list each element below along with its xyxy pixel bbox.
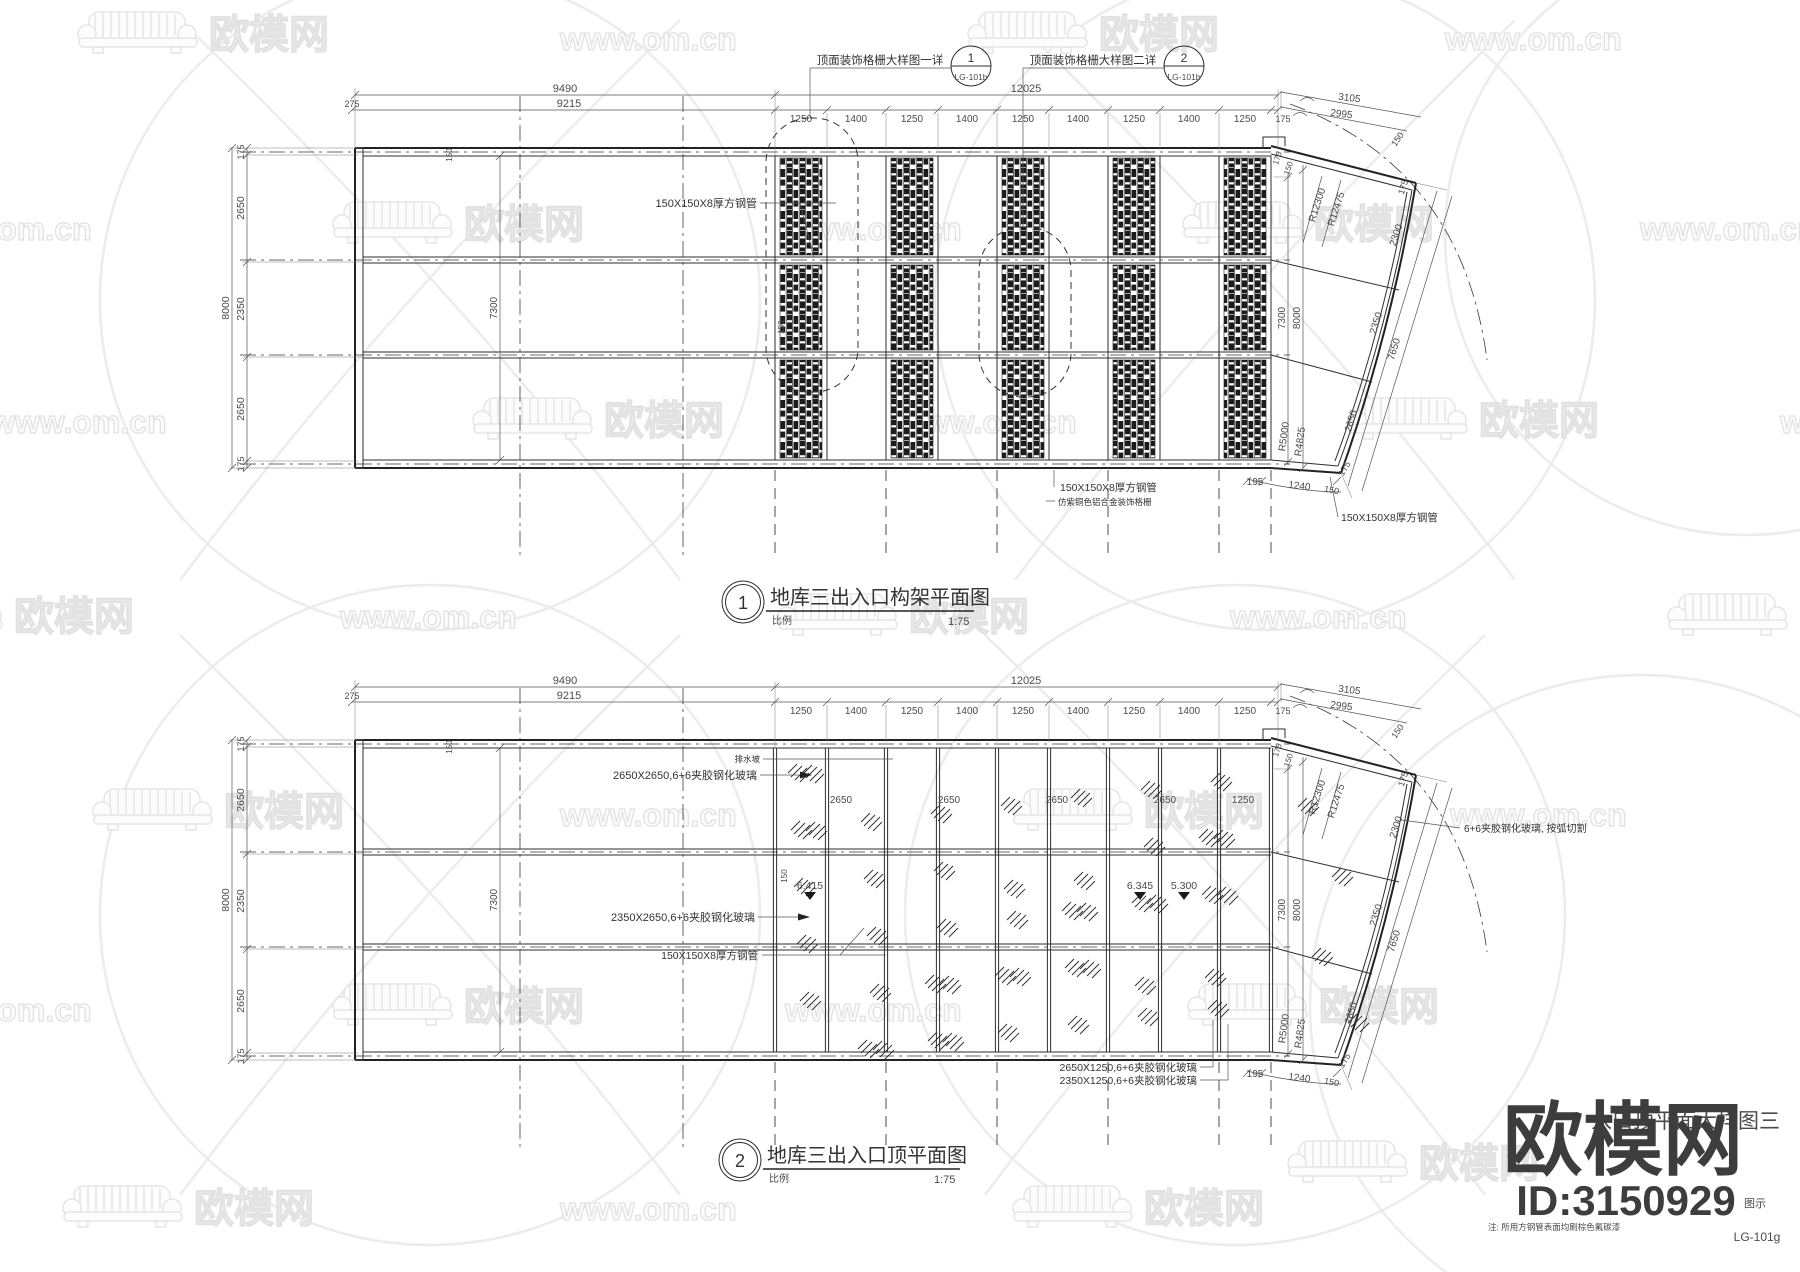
callout-text: 顶面装饰格栅大样图一详 (817, 53, 944, 67)
plan1-frame-plan: 顶面装饰格栅大样图一详 1 LG-101b 顶面装饰格栅大样图二详 2 LG-1… (656, 46, 1438, 628)
panel-dim: 2650 (830, 795, 853, 806)
label-steel-tube-fan: 150X150X8厚方钢管 (1330, 477, 1438, 524)
label-glass-d: 2350X1250,6+6夹胶钢化玻璃 (1060, 1024, 1228, 1087)
label-text: 2350X1250,6+6夹胶钢化玻璃 (1060, 1074, 1197, 1087)
panel-dim: 1250 (1232, 795, 1255, 806)
site-brand: 欧模网 (1503, 1096, 1743, 1185)
panel-dim: 2650 (1154, 795, 1177, 806)
label-text: 2650X2650,6+6夹胶钢化玻璃 (613, 768, 757, 782)
callout-ref: LG-101b (954, 72, 987, 82)
site-id: ID:3150929 (1516, 1177, 1736, 1224)
label-glass-a: 2650X2650,6+6夹胶钢化玻璃 (613, 768, 812, 782)
callout-text: 顶面装饰格栅大样图二详 (1030, 53, 1157, 67)
dim-joint: 150 (777, 320, 786, 334)
elevation-marker: 6.415 (797, 880, 823, 900)
panel-dim: 2650 (938, 795, 961, 806)
scale-label: 比例 (769, 1172, 789, 1185)
label-text: 150X150X8厚方钢管 (656, 196, 758, 210)
plan-title-text: 地库三出入口顶平面图 (767, 1144, 967, 1167)
label-text: 2650X1250,6+6夹胶钢化玻璃 (1060, 1061, 1197, 1074)
elevation-value: 5.300 (1171, 880, 1197, 892)
elevation-marker: 6.345 (1127, 880, 1153, 900)
panel-dim: 2650 (1046, 795, 1069, 806)
label-grille: 仿紫铜色铝合金装饰格栅 (1058, 497, 1152, 507)
legend-label: 图示 (1744, 1197, 1766, 1210)
plan-title-text: 地库三出入口构架平面图 (770, 586, 990, 609)
corner-watermark: 入口顶平面大样图三 欧模网 ID:3150929 图示 注: 所用方钢管表面均刷… (1488, 1096, 1780, 1244)
elevation-value: 6.415 (797, 880, 823, 892)
label-text: 6+6夹胶钢化玻璃, 按弧切割 (1464, 822, 1587, 835)
label-glass-c: 2650X1250,6+6夹胶钢化玻璃 (1060, 1020, 1213, 1074)
label-text: 150X150X8厚方钢管 (1341, 511, 1438, 524)
label-text: 150X150X8厚方钢管 (1060, 481, 1157, 494)
elevation-marker: 5.300 (1171, 880, 1197, 900)
scale-value: 1:75 (934, 1174, 955, 1186)
plan-number: 1 (738, 593, 748, 613)
label-steel-tube-bottom: 150X150X8厚方钢管 仿紫铜色铝合金装饰格栅 (1046, 470, 1157, 507)
sheet-number: LG-101g (1734, 1230, 1781, 1244)
drawing-canvas: 欧模网 www.om.cn (0, 0, 1800, 1272)
scale-value: 1:75 (948, 616, 969, 628)
callout-ref: LG-101b (1167, 72, 1200, 82)
callout-number: 1 (968, 51, 975, 65)
label-text: 150X150X8厚方钢管 (661, 949, 758, 962)
label-glass-b: 2350X2650,6+6夹胶钢化玻璃 (611, 910, 810, 924)
elevation-value: 6.345 (1127, 880, 1153, 892)
dim-joint: 150 (780, 869, 789, 883)
plan2-title: 2 地库三出入口顶平面图 比例 1:75 (719, 1139, 967, 1186)
label-text: 排水坡 (734, 754, 760, 764)
plan-number: 2 (735, 1151, 745, 1171)
label-drain: 排水坡 (734, 754, 893, 764)
scale-label: 比例 (772, 614, 792, 627)
sheet-note: 注: 所用方钢管表面均刷棕色氟碳漆 (1488, 1222, 1621, 1232)
callout-number: 2 (1181, 51, 1188, 65)
cad-sheet: 欧模网 www.om.cn (0, 0, 1800, 1272)
label-text: 2350X2650,6+6夹胶钢化玻璃 (611, 910, 755, 924)
